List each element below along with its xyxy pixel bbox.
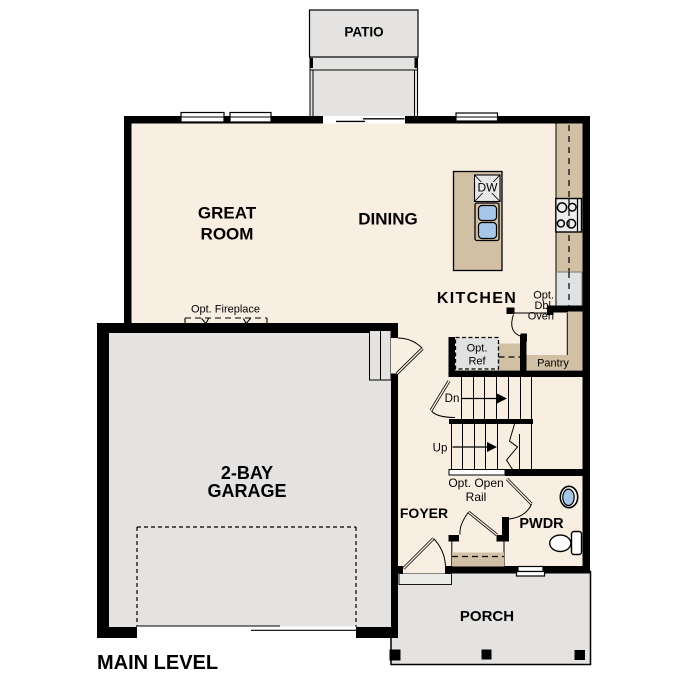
svg-text:GREAT: GREAT xyxy=(198,204,257,223)
svg-text:Opt. Fireplace: Opt. Fireplace xyxy=(191,304,260,316)
svg-text:ROOM: ROOM xyxy=(201,225,254,244)
svg-text:DW: DW xyxy=(478,181,499,195)
svg-text:2-BAY: 2-BAY xyxy=(221,463,273,483)
svg-text:Dn: Dn xyxy=(445,393,460,405)
svg-text:Rail: Rail xyxy=(466,490,487,504)
svg-text:DINING: DINING xyxy=(358,210,418,229)
svg-text:Opt.: Opt. xyxy=(467,343,488,355)
svg-text:PORCH: PORCH xyxy=(460,608,514,625)
svg-text:Opt. Open: Opt. Open xyxy=(448,476,503,490)
svg-text:MAIN LEVEL: MAIN LEVEL xyxy=(97,652,218,674)
svg-text:PWDR: PWDR xyxy=(519,516,564,532)
svg-text:Pantry: Pantry xyxy=(537,358,569,370)
svg-text:FOYER: FOYER xyxy=(400,505,448,521)
svg-text:GARAGE: GARAGE xyxy=(207,481,286,501)
svg-text:Up: Up xyxy=(433,443,448,455)
svg-text:Ref: Ref xyxy=(468,356,486,368)
svg-text:KITCHEN: KITCHEN xyxy=(437,290,517,307)
svg-text:PATIO: PATIO xyxy=(344,25,383,40)
